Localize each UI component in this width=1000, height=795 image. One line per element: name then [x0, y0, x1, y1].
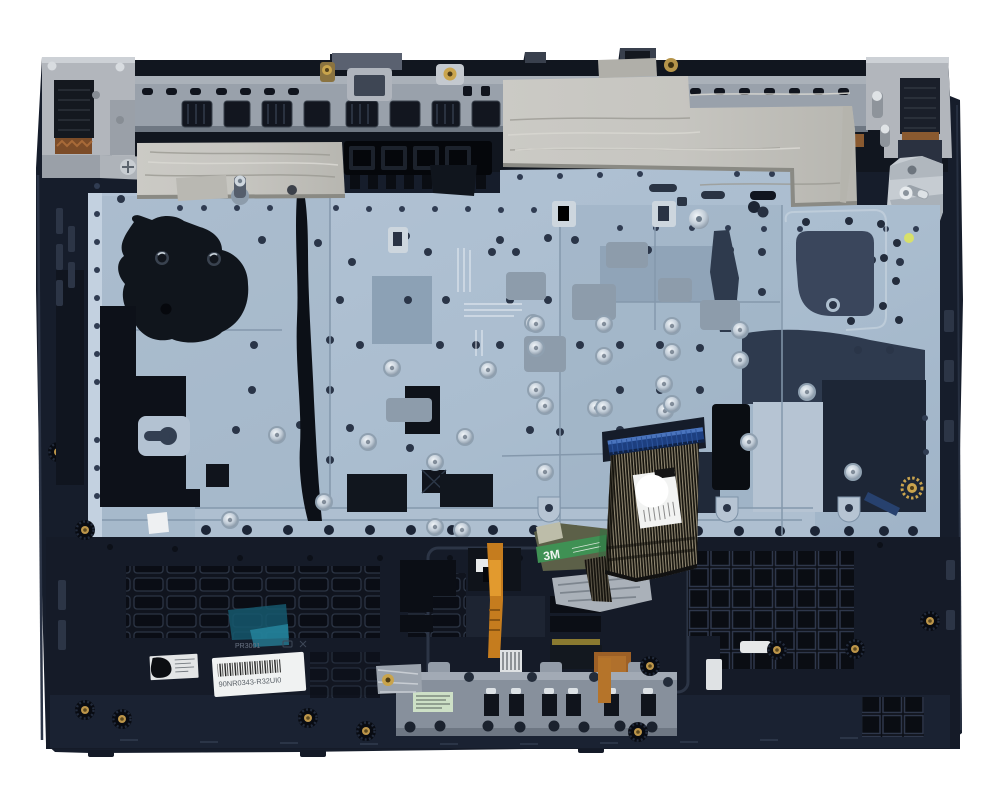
svg-text:PR3001: PR3001: [235, 643, 260, 650]
svg-text:3M: 3M: [542, 547, 561, 563]
